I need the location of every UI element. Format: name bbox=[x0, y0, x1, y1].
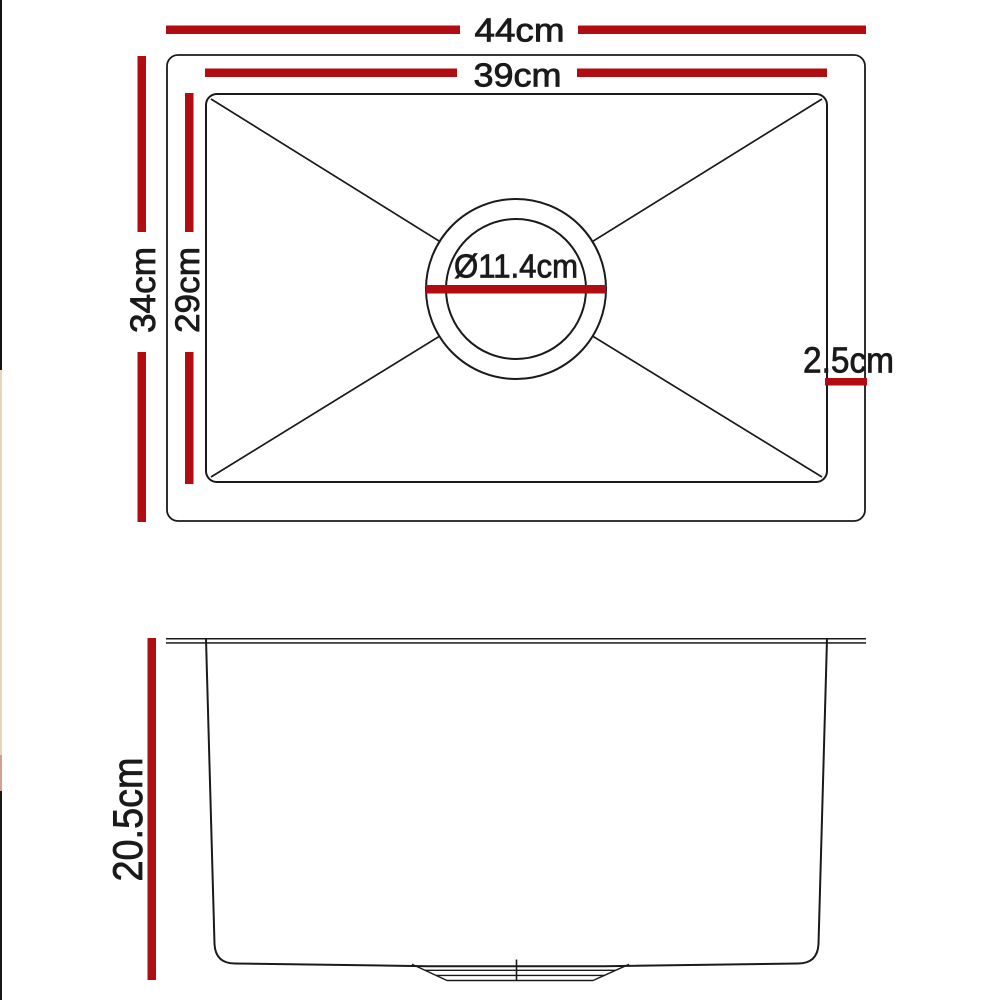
svg-text:34cm: 34cm bbox=[124, 247, 163, 333]
svg-text:39cm: 39cm bbox=[474, 57, 562, 94]
svg-text:Ø11.4cm: Ø11.4cm bbox=[454, 248, 578, 285]
svg-text:20.5cm: 20.5cm bbox=[104, 758, 151, 882]
svg-text:44cm: 44cm bbox=[475, 12, 565, 49]
svg-text:29cm: 29cm bbox=[169, 247, 207, 333]
svg-text:2.5cm: 2.5cm bbox=[803, 340, 894, 381]
